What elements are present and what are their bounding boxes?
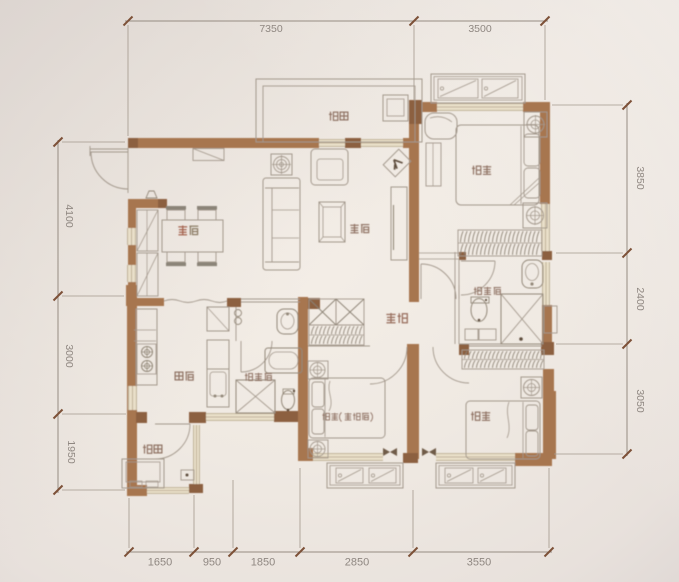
svg-text:1650: 1650 bbox=[148, 557, 172, 569]
svg-text:1950: 1950 bbox=[65, 440, 77, 464]
svg-text:2400: 2400 bbox=[634, 287, 646, 311]
svg-text:3500: 3500 bbox=[468, 23, 492, 35]
svg-text:2850: 2850 bbox=[345, 557, 369, 569]
svg-text:950: 950 bbox=[203, 557, 221, 569]
svg-text:3050: 3050 bbox=[634, 389, 646, 413]
svg-text:4100: 4100 bbox=[63, 204, 75, 228]
svg-text:3550: 3550 bbox=[467, 557, 491, 569]
svg-text:3850: 3850 bbox=[634, 166, 646, 190]
svg-text:7350: 7350 bbox=[259, 23, 283, 35]
svg-text:1850: 1850 bbox=[251, 557, 275, 569]
svg-text:3000: 3000 bbox=[63, 344, 75, 368]
